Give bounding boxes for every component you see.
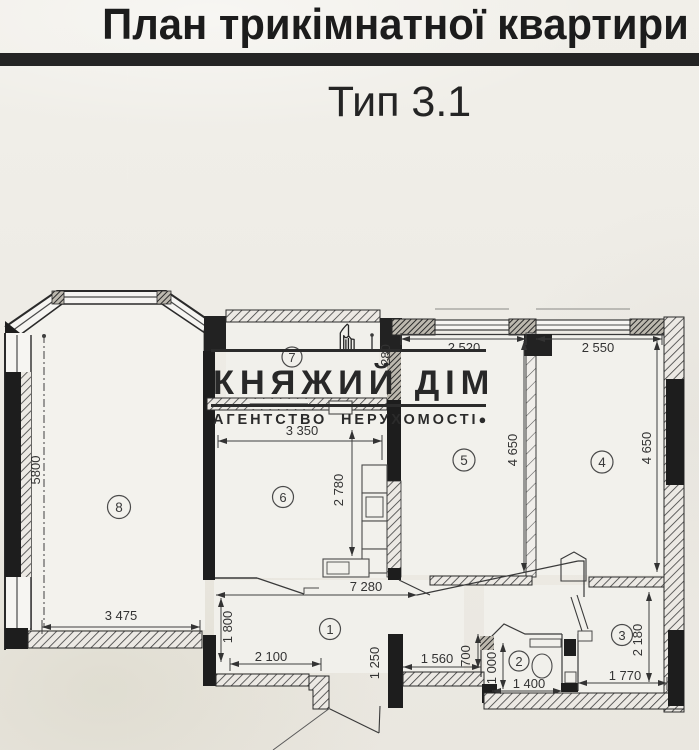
svg-text:700: 700 — [458, 645, 473, 667]
svg-text:1 250: 1 250 — [367, 647, 382, 680]
svg-text:1 800: 1 800 — [220, 611, 235, 644]
svg-text:1 400: 1 400 — [513, 676, 546, 691]
svg-text:5: 5 — [460, 453, 468, 468]
svg-text:280: 280 — [378, 344, 393, 366]
svg-text:6: 6 — [279, 490, 286, 505]
svg-text:2 520: 2 520 — [448, 340, 481, 355]
svg-text:3 475: 3 475 — [105, 608, 138, 623]
svg-text:3: 3 — [618, 628, 625, 643]
svg-text:2 100: 2 100 — [255, 649, 288, 664]
svg-text:4 650: 4 650 — [505, 434, 520, 467]
svg-text:8: 8 — [115, 500, 123, 515]
svg-text:7 280: 7 280 — [350, 579, 383, 594]
svg-text:1 560: 1 560 — [421, 651, 454, 666]
svg-text:1: 1 — [326, 622, 333, 637]
svg-text:1 770: 1 770 — [609, 668, 642, 683]
svg-text:1 000: 1 000 — [484, 652, 499, 685]
svg-text:4: 4 — [598, 455, 606, 470]
svg-text:7: 7 — [288, 350, 295, 365]
svg-text:2 550: 2 550 — [582, 340, 615, 355]
svg-text:5800: 5800 — [28, 456, 43, 485]
svg-text:2 180: 2 180 — [630, 624, 645, 657]
svg-text:4 650: 4 650 — [639, 432, 654, 465]
svg-text:2: 2 — [515, 654, 522, 669]
svg-text:2 780: 2 780 — [331, 474, 346, 507]
